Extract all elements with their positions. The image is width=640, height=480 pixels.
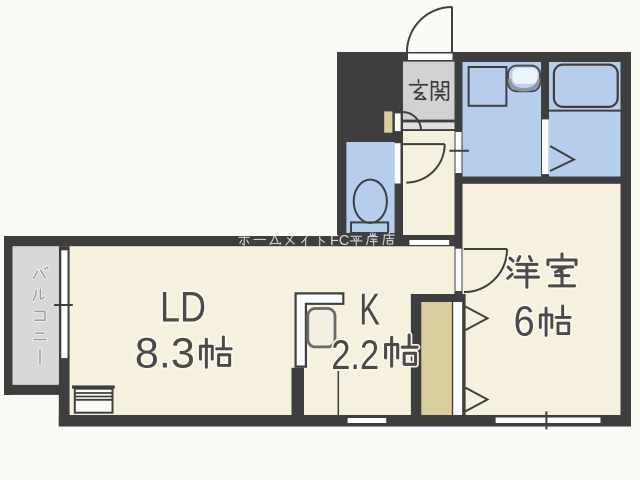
- svg-text:2.2: 2.2: [331, 331, 379, 378]
- svg-text:8.3: 8.3: [135, 330, 195, 378]
- svg-text:K: K: [359, 285, 380, 334]
- svg-text:6: 6: [514, 298, 535, 346]
- svg-text:FC: FC: [330, 233, 349, 249]
- svg-text:LD: LD: [160, 284, 206, 332]
